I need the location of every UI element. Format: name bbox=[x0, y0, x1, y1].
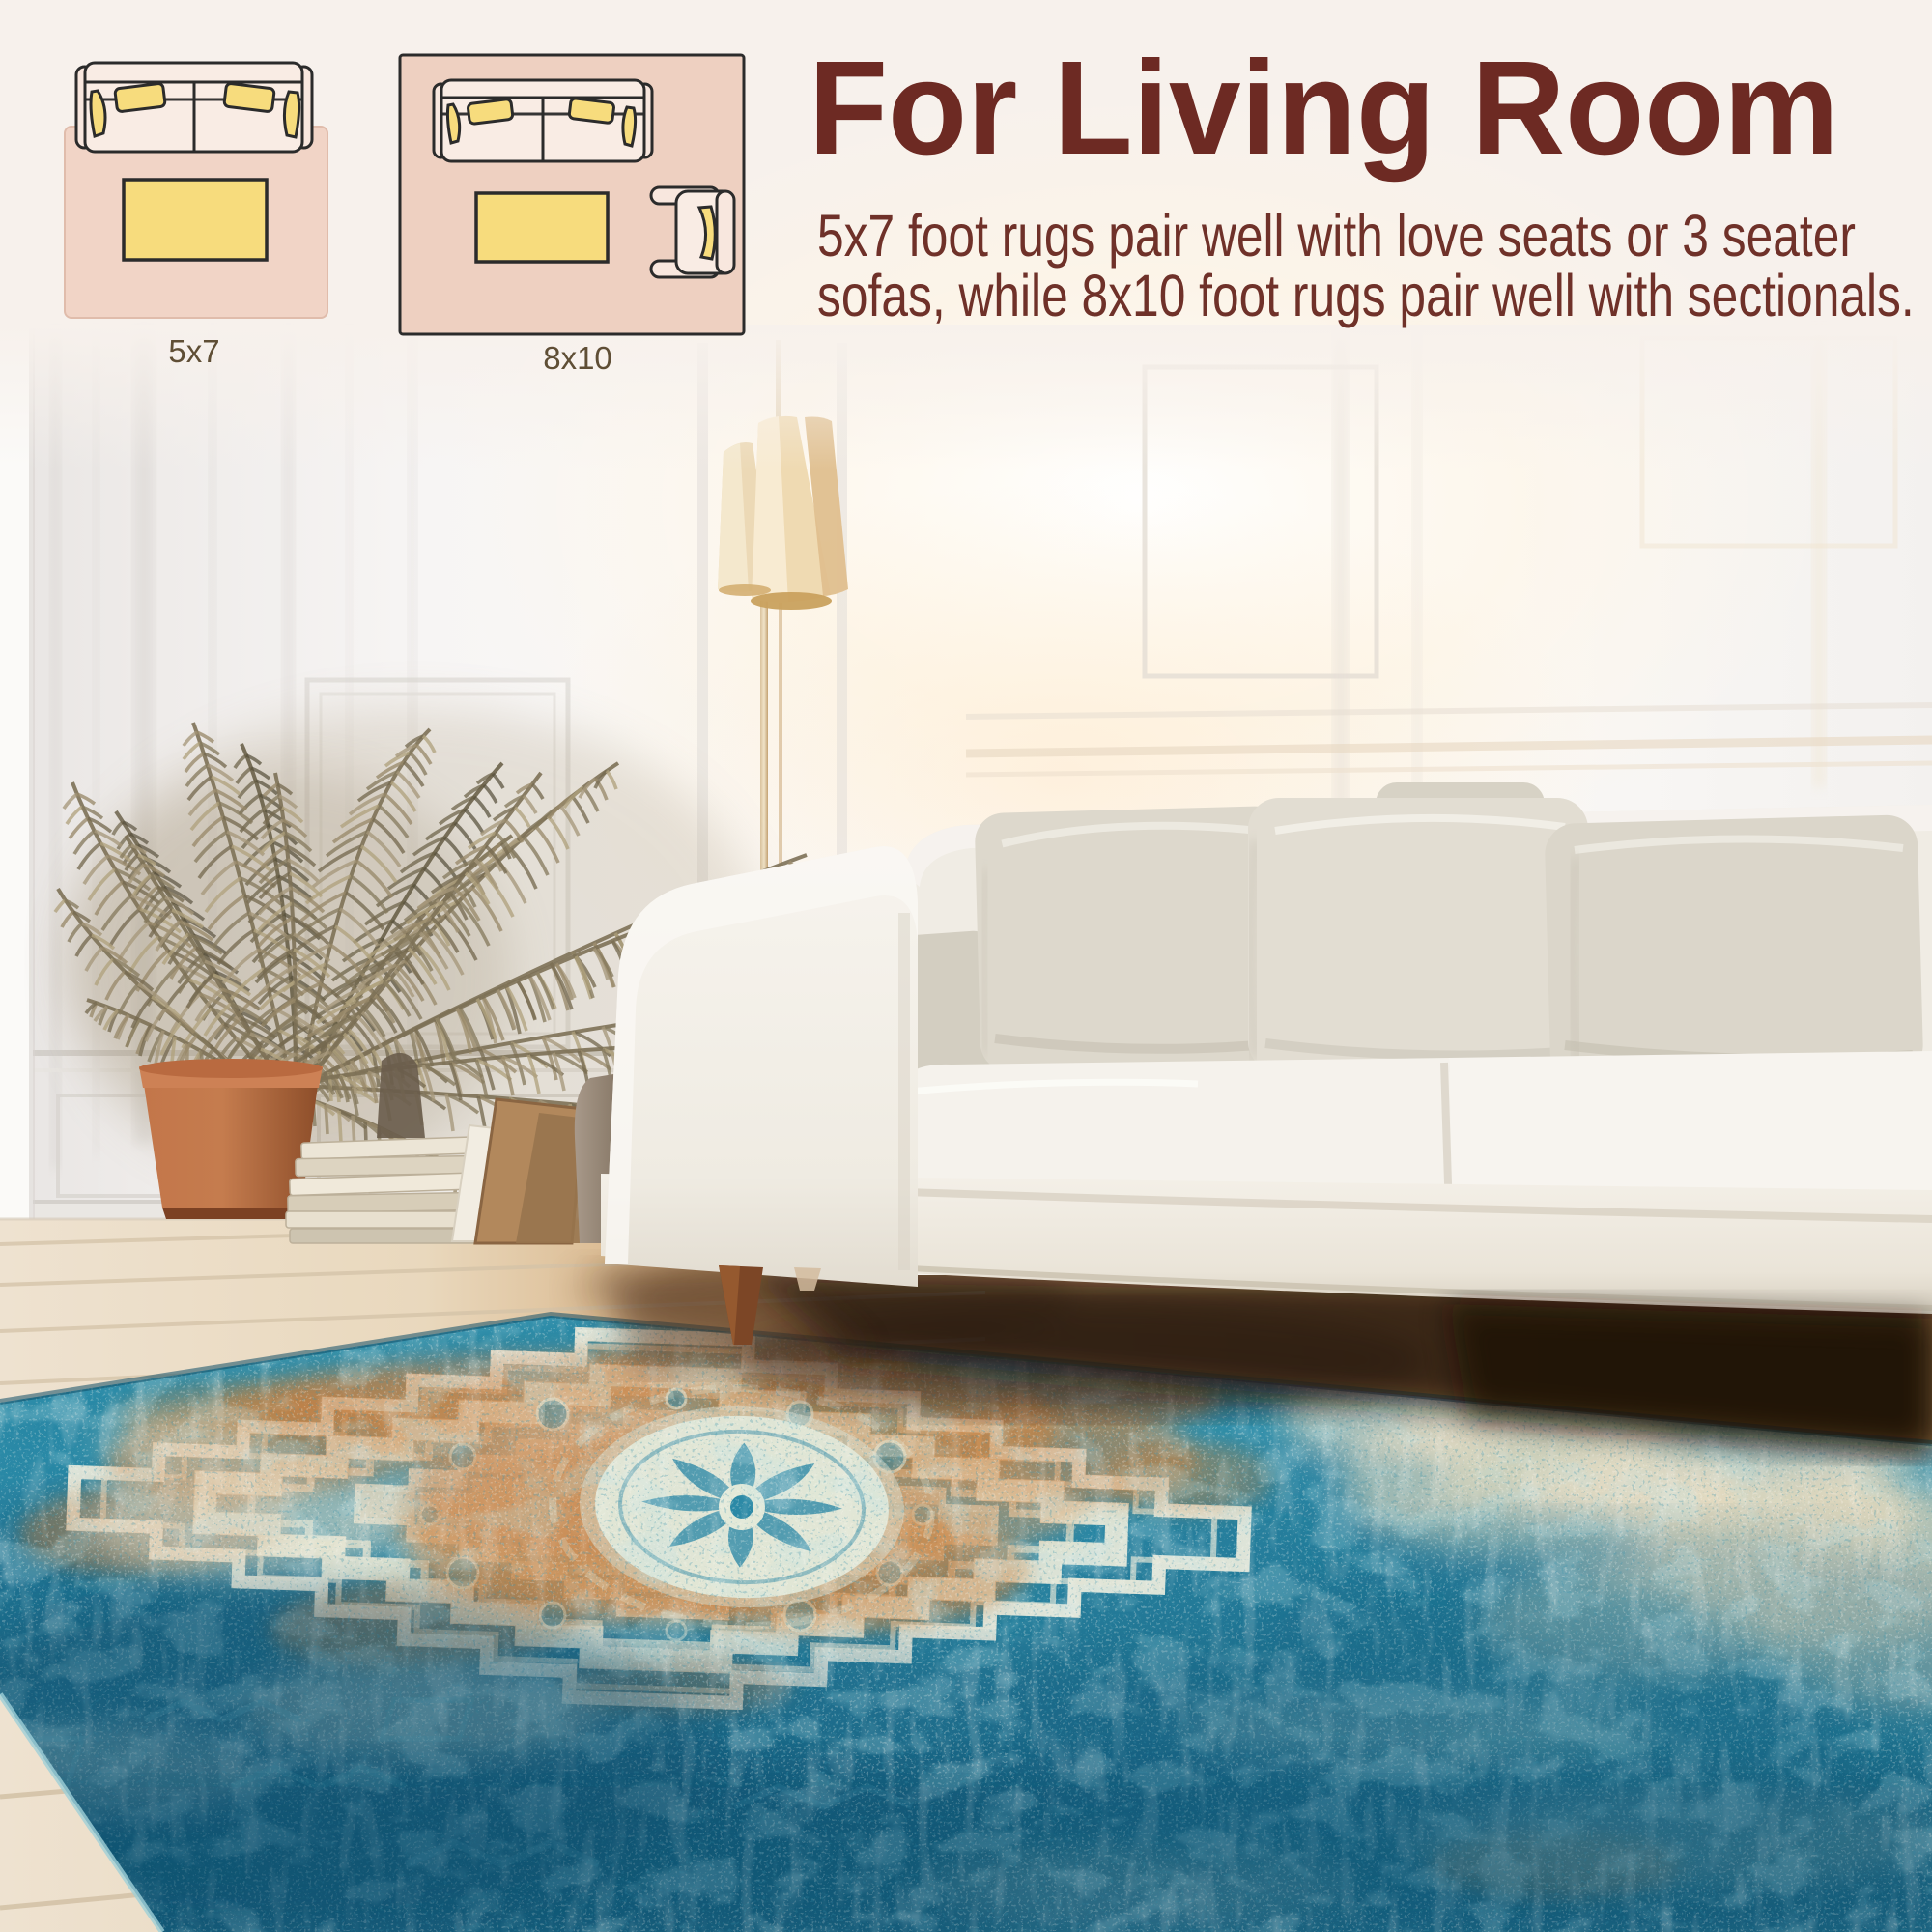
svg-text:8x10: 8x10 bbox=[543, 340, 612, 376]
